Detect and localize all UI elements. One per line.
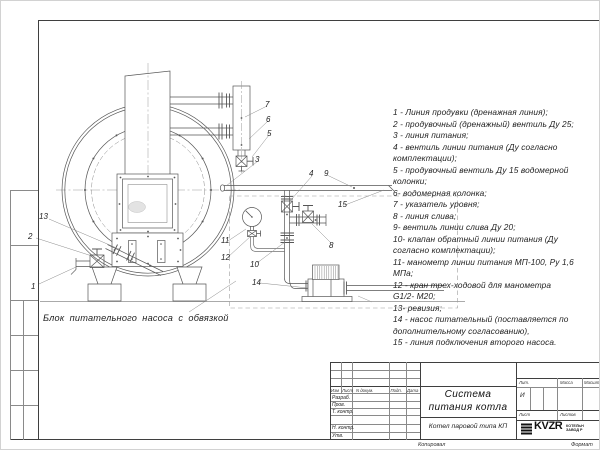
mass-label: Масса xyxy=(560,380,573,385)
sig-row-tcontrol: Т. контр. xyxy=(332,409,354,415)
burner-panel xyxy=(112,233,183,267)
format-label: Формат xyxy=(571,442,593,448)
change-col-date: Дата xyxy=(407,388,418,393)
scale-label: Масштаб xyxy=(584,380,600,385)
legend-line: 12 - кран трех-ходовой для манометра xyxy=(393,280,600,292)
kvzr-logo-subtext-line2: ЗАВОД Р xyxy=(566,428,584,433)
legend-line: 5 - продувочный вентиль Ду 15 водомерной xyxy=(393,165,600,177)
chimney xyxy=(125,71,170,178)
legend-line: колонки; xyxy=(393,176,600,188)
legend-line: 15 - линия подключения второго насоса. xyxy=(393,337,600,349)
legend-line: дополнительному согласованию), xyxy=(393,326,600,338)
lit-value: И xyxy=(520,392,525,399)
legend-line: 2 - продувочный (дренажный) вентиль Ду 2… xyxy=(393,119,600,131)
legend-line: 6- водомерная колонка; xyxy=(393,188,600,200)
drain-branch xyxy=(290,206,327,227)
pressure-gauge xyxy=(243,208,285,252)
legend-line: 7 - указатель уровня; xyxy=(393,199,600,211)
change-col-list: Лист xyxy=(342,388,353,393)
boiler-supports xyxy=(88,267,206,301)
legend-line: 1 - Линия продувки (дренажная линия); xyxy=(393,107,600,119)
legend-line: 4 - вентиль линии питания (Ду согласно xyxy=(393,142,600,154)
legend-line: 11- манометр линии питания МП-100, Ру 1,… xyxy=(393,257,600,269)
sig-row-ncontrol: Н. контр. xyxy=(332,425,355,431)
lit-label: Лит. xyxy=(519,380,529,385)
copied-label: Копировал xyxy=(418,442,445,448)
document-subtitle: Котел паровой типа КП xyxy=(420,423,516,430)
document-title-line1: Система xyxy=(420,389,516,400)
kvzr-logo-icon xyxy=(520,422,533,437)
feed-drop-pipe xyxy=(281,191,300,279)
legend-line: МПа; xyxy=(393,268,600,280)
legend-line: 8 - линия слива; xyxy=(393,211,600,223)
column-blowdown-valve xyxy=(236,150,253,171)
change-col-doc: N докум. xyxy=(356,388,373,393)
sig-row-developed: Разраб. xyxy=(332,395,350,401)
legend-line: 9- вентиль линии слива Ду 20; xyxy=(393,222,600,234)
sig-row-approved: Утв. xyxy=(332,433,343,439)
legend-line: 14 - насос питательный (поставляется по xyxy=(393,314,600,326)
legend-line: G1/2- М20; xyxy=(393,291,600,303)
kvzr-logo-text: KVZR xyxy=(534,420,562,432)
water-gauge-column xyxy=(170,81,250,173)
legend-line: комплектации); xyxy=(393,153,600,165)
legend-line: 10- клапан обратный линии питания (Ду xyxy=(393,234,600,246)
sig-row-checked: Пров. xyxy=(332,402,345,408)
drawing-caption: Блок питательного насоса с обвязкой xyxy=(43,313,229,323)
sheets-label: Листов xyxy=(560,412,576,417)
change-col-izm: Изм xyxy=(331,388,339,393)
sheet-label: Лист xyxy=(519,412,530,417)
inspection-door xyxy=(117,174,178,233)
kvzr-logo-subtext: КОТЕЛЬН ЗАВОД Р xyxy=(566,424,584,433)
legend-line: 3 - линия питания; xyxy=(393,130,600,142)
document-title-line2: питания котла xyxy=(420,402,516,413)
legend: 1 - Линия продувки (дренажная линия);2 -… xyxy=(393,107,600,349)
legend-line: согласно комплектации); xyxy=(393,245,600,257)
legend-line: 13- ревизия; xyxy=(393,303,600,315)
feed-line xyxy=(220,185,394,191)
drawing-sheet: { "page": { "copied_label": "Копировал",… xyxy=(0,0,600,450)
change-col-sign: Подп. xyxy=(391,388,402,393)
